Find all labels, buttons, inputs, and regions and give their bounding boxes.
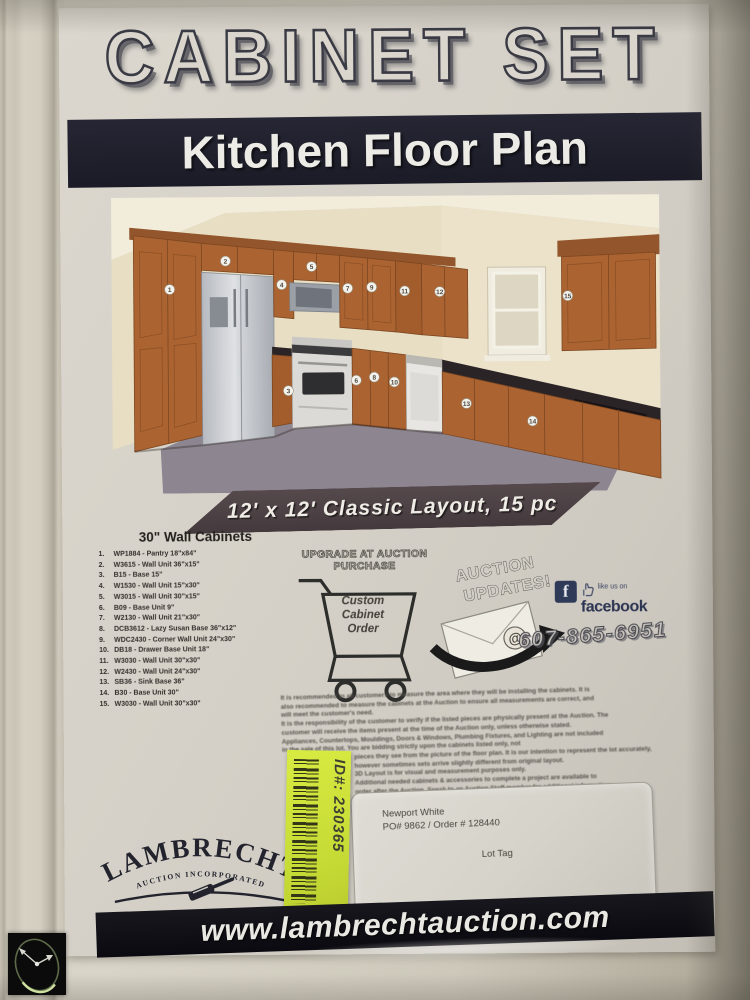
- right-wall-cabinet: [561, 252, 656, 351]
- cabinet-badge: 11: [401, 288, 408, 295]
- photo-shadow-bottom: [0, 974, 750, 1000]
- logo-subtitle: AUCTION INCORPORATED: [135, 869, 267, 891]
- microwave: [290, 282, 344, 312]
- lambrecht-logo: LAMBRECHT AUCTION INCORPORATED: [98, 827, 303, 914]
- facebook-tagline: like us on: [598, 583, 628, 590]
- window: [484, 267, 551, 361]
- cabinet-badge: 4: [280, 282, 284, 289]
- cabinet-badge: 12: [436, 289, 444, 296]
- cabinet-badge: 8: [372, 375, 376, 382]
- auction-updates-graphic: AUCTION UPDATES! @: [419, 551, 590, 692]
- id-barcode-sticker: ID#: 230365: [284, 750, 351, 913]
- barcode: [291, 759, 319, 903]
- cabinet-badge: 5: [310, 264, 314, 271]
- photo-watermark: [8, 933, 66, 995]
- custom-cabinet-order-label: Custom Cabinet Order: [313, 594, 413, 637]
- range: [292, 336, 353, 428]
- dishwasher: [406, 355, 443, 432]
- cabinet-badge: 10: [391, 379, 399, 386]
- facebook-icon: f: [555, 581, 577, 603]
- cabinet-list-header: 30" Wall Cabinets: [95, 529, 295, 545]
- svg-text:LAMBRECHT: LAMBRECHT: [98, 831, 303, 887]
- cabinet-badge: 15: [564, 293, 572, 300]
- refrigerator: [202, 272, 275, 445]
- photo-of-door-with-poster: CABINET SET Kitchen Floor Plan: [0, 0, 750, 1000]
- auction-poster: CABINET SET Kitchen Floor Plan: [59, 4, 716, 957]
- poster-subtitle-bar: Kitchen Floor Plan: [67, 112, 702, 188]
- pantry-cabinet: [133, 235, 203, 451]
- sticker-id-text: ID#: 230365: [329, 759, 348, 853]
- cabinet-list: 30" Wall Cabinets 1.WP1884 - Pantry 18"x…: [95, 529, 296, 711]
- facebook-plug: f like us on facebook: [555, 580, 695, 617]
- door-frame-molding: [0, 0, 64, 1000]
- poster-title: CABINET SET: [59, 11, 710, 101]
- list-item: 15.W3030 - Wall Unit 30"x30": [97, 698, 297, 710]
- logo-name: LAMBRECHT: [98, 831, 303, 887]
- cabinet-badge: 6: [354, 378, 358, 385]
- thumbs-up-icon: [582, 583, 594, 597]
- cabinet-badge: 9: [370, 285, 374, 292]
- lot-tag-text: Lot Tag: [482, 842, 654, 860]
- cabinet-badge: 3: [287, 388, 291, 395]
- facebook-wordmark: facebook: [581, 598, 695, 617]
- cabinet-badge: 13: [463, 401, 471, 408]
- cabinet-badge: 2: [224, 259, 228, 266]
- svg-text:AUCTION INCORPORATED: AUCTION INCORPORATED: [135, 869, 267, 891]
- cabinet-badge: 1: [168, 287, 172, 294]
- cabinet-badge: 7: [346, 286, 350, 293]
- orbit-clock-icon: [8, 933, 66, 995]
- cabinet-badge: 14: [529, 418, 537, 425]
- kitchen-rendering: 1 2 3 4 5 6 7 8 9 10 11 12 13 14 15: [103, 194, 665, 494]
